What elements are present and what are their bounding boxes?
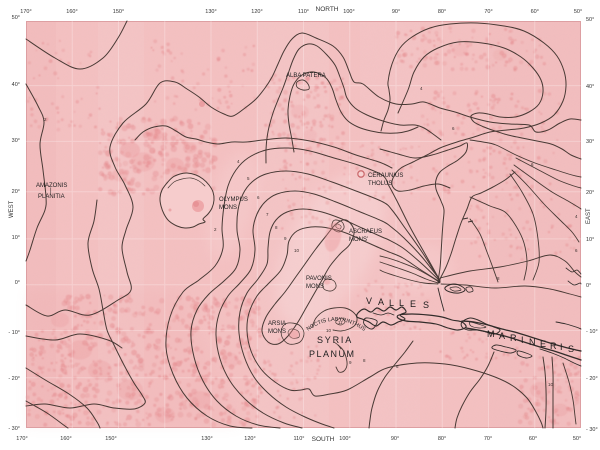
svg-text:I: I	[560, 342, 563, 352]
svg-text:20°: 20°	[12, 189, 20, 195]
svg-text:M: M	[487, 329, 495, 339]
svg-text:110°: 110°	[298, 9, 309, 15]
svg-text:150°: 150°	[113, 9, 124, 15]
svg-text:MONS: MONS	[219, 205, 237, 211]
svg-text:SOUTH: SOUTH	[312, 436, 335, 443]
svg-text:L: L	[399, 298, 404, 308]
svg-text:CERAUNIUS: CERAUNIUS	[368, 173, 403, 179]
svg-text:160°: 160°	[66, 9, 77, 15]
svg-text:30°: 30°	[586, 139, 594, 145]
svg-text:20°: 20°	[586, 190, 594, 196]
svg-text:50°: 50°	[586, 17, 594, 23]
svg-text:120°: 120°	[251, 9, 262, 15]
svg-text:- 10°: - 10°	[8, 330, 20, 336]
svg-text:130°: 130°	[205, 9, 216, 15]
svg-text:40°: 40°	[586, 84, 594, 90]
svg-text:ALBA PATERA: ALBA PATERA	[286, 73, 326, 79]
svg-text:60°: 60°	[529, 436, 537, 442]
svg-text:R: R	[550, 341, 557, 351]
svg-text:N: N	[529, 337, 536, 347]
svg-text:- 20°: - 20°	[586, 376, 598, 382]
svg-text:60°: 60°	[531, 9, 539, 15]
svg-text:S: S	[423, 300, 429, 310]
svg-text:50°: 50°	[574, 9, 582, 15]
svg-text:0°: 0°	[15, 280, 20, 286]
svg-text:- 10°: - 10°	[586, 329, 598, 335]
svg-text:E: E	[540, 339, 546, 349]
svg-text:10: 10	[548, 382, 554, 387]
svg-text:SYRIA: SYRIA	[317, 335, 353, 345]
svg-text:AMAZONIS: AMAZONIS	[36, 183, 67, 189]
svg-text:120°: 120°	[244, 436, 255, 442]
svg-text:160°: 160°	[60, 436, 71, 442]
svg-text:ASCRAEUS: ASCRAEUS	[349, 229, 382, 235]
svg-text:L: L	[389, 298, 394, 308]
svg-text:40°: 40°	[12, 82, 20, 88]
svg-text:EAST: EAST	[586, 208, 592, 224]
svg-text:MONS’: MONS’	[349, 237, 368, 243]
svg-text:70°: 70°	[484, 436, 492, 442]
svg-text:130°: 130°	[201, 436, 212, 442]
svg-text:- 20°: - 20°	[8, 376, 20, 382]
svg-text:50°: 50°	[12, 15, 20, 21]
svg-text:OLYMPUS: OLYMPUS	[219, 197, 248, 203]
svg-text:WEST: WEST	[9, 200, 15, 218]
svg-text:110°: 110°	[294, 436, 305, 442]
svg-text:10: 10	[294, 248, 300, 253]
svg-text:10°: 10°	[12, 235, 20, 241]
svg-text:0°: 0°	[586, 283, 591, 289]
svg-text:70°: 70°	[484, 9, 492, 15]
svg-text:MONS: MONS	[268, 329, 286, 335]
svg-text:90°: 90°	[391, 436, 399, 442]
svg-text:170°: 170°	[20, 9, 31, 15]
svg-text:E: E	[410, 299, 416, 309]
svg-text:R: R	[510, 333, 517, 343]
svg-text:30°: 30°	[12, 138, 20, 144]
svg-text:NORTH: NORTH	[316, 6, 339, 13]
svg-text:S: S	[568, 344, 574, 354]
svg-text:80°: 80°	[438, 436, 446, 442]
svg-text:PLANITIA: PLANITIA	[38, 194, 65, 200]
svg-text:90°: 90°	[392, 9, 400, 15]
svg-text:- 30°: - 30°	[586, 427, 598, 433]
svg-text:100°: 100°	[339, 436, 350, 442]
svg-text:150°: 150°	[105, 436, 116, 442]
svg-text:- 30°: - 30°	[8, 426, 20, 432]
svg-text:I: I	[521, 335, 524, 345]
svg-text:MONS: MONS	[306, 284, 324, 290]
svg-text:PLANUM: PLANUM	[309, 349, 356, 359]
svg-text:100°: 100°	[343, 9, 354, 15]
svg-text:V: V	[366, 296, 372, 306]
svg-text:50°: 50°	[573, 436, 581, 442]
svg-text:A: A	[378, 297, 384, 307]
svg-text:10: 10	[326, 328, 332, 333]
svg-text:ARSIA: ARSIA	[268, 321, 286, 327]
svg-text:THOLUS: THOLUS	[368, 181, 392, 187]
svg-text:80°: 80°	[438, 9, 446, 15]
svg-text:A: A	[499, 331, 505, 341]
svg-text:170°: 170°	[16, 436, 27, 442]
svg-text:10°: 10°	[586, 237, 594, 243]
svg-text:PAVONIS: PAVONIS	[306, 276, 332, 282]
